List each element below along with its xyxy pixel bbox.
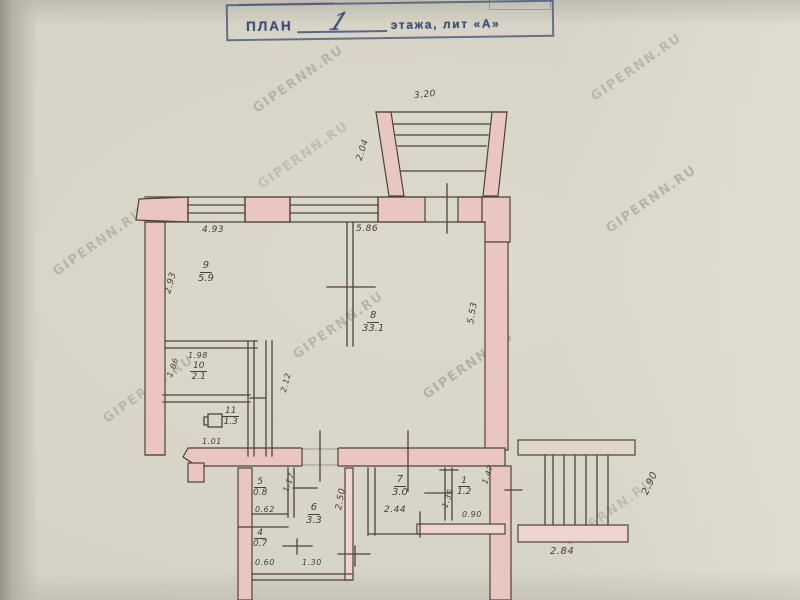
main-bottom-wall [183, 448, 505, 466]
left-wall [145, 222, 165, 455]
top-wall-pier [458, 197, 482, 222]
scanned-floorplan-photo: ПЛАН 1 этажа, лит «А» GIPERNN.RU GIPERNN… [0, 0, 800, 600]
room-label-6: 6 3.3 [306, 502, 322, 526]
room-label-8: 8 33.1 [362, 310, 384, 334]
dim-room11-width: 1.01 [202, 437, 222, 446]
dim-window-right: 5.86 [356, 224, 378, 234]
dim-room1-width: 0.90 [462, 510, 482, 519]
top-right-corner-wall [482, 197, 510, 242]
wall-stub [188, 463, 204, 482]
bottom-left-wall [238, 468, 252, 600]
top-wall-cap [136, 197, 188, 222]
room-label-10: 10 2.1 [190, 361, 207, 383]
stairs-bottom-bar [518, 525, 628, 542]
room-label-1: 1 1.2 [457, 476, 471, 498]
room-label-5: 5 0.8 [253, 477, 267, 499]
dim-room4-width: 0.60 [255, 558, 275, 567]
room-label-11: 11 1.3 [222, 406, 239, 428]
dim-window-left: 4.93 [202, 225, 224, 235]
room-label-4: 4 0.7 [253, 528, 267, 550]
toilet-fixture [208, 414, 222, 427]
right-wall [485, 242, 508, 450]
dim-room5-width: 0.62 [255, 505, 275, 514]
rooms71-bottom-wall [417, 524, 505, 534]
dim-hall-width: 1.30 [302, 558, 322, 567]
top-wall-pier [378, 197, 425, 222]
dim-stairs-width: 2.84 [550, 546, 574, 557]
room-label-9: 9 5.9 [198, 260, 214, 284]
top-wall-pier [245, 197, 290, 222]
room6-right-wall [345, 468, 353, 580]
room-label-7: 7 3.0 [392, 474, 408, 498]
stairs-top-bar [518, 440, 635, 455]
dim-room10-width: 1.98 [188, 351, 208, 360]
dim-room7-width: 2.44 [384, 505, 406, 515]
